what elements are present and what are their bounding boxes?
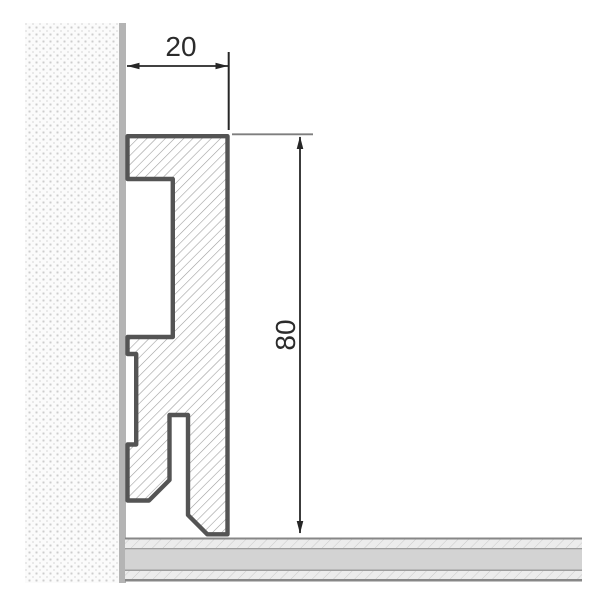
floor-separator-line-2 (125, 570, 582, 572)
floor-solid-band (125, 549, 582, 569)
drawing-svg (0, 0, 604, 604)
skirting-profile-outline (128, 136, 228, 534)
floor-top-line (125, 538, 582, 540)
arrow-down-icon (297, 521, 304, 534)
floor-bottom-line (125, 579, 582, 582)
arrow-up-icon (297, 136, 304, 149)
height-dimension-label: 80 (272, 319, 300, 350)
width-dimension-label: 20 (165, 33, 196, 61)
technical-drawing: 20 80 (0, 0, 604, 604)
arrow-right-icon (216, 63, 229, 70)
floor-lower-hatch-band (125, 571, 582, 579)
arrow-left-icon (127, 63, 140, 70)
floor-separator-line-1 (125, 548, 582, 549)
floor-section (125, 538, 582, 582)
floor-upper-hatch-band (125, 540, 582, 549)
width-dimension (127, 52, 229, 130)
